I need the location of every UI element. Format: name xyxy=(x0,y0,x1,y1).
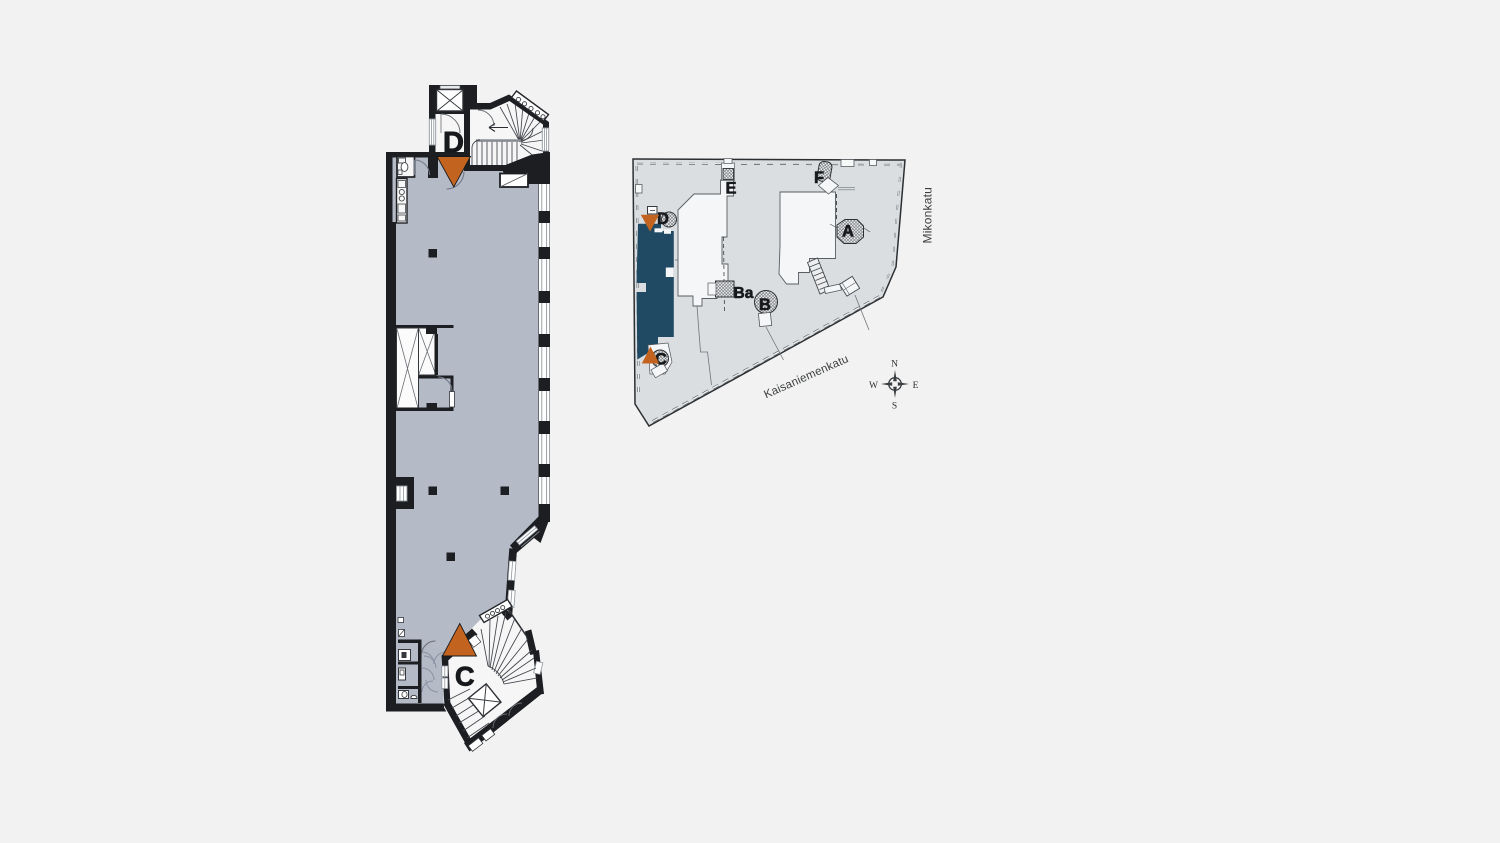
svg-text:E: E xyxy=(913,381,919,391)
svg-text:F: F xyxy=(814,169,824,187)
svg-text:S: S xyxy=(892,402,897,412)
svg-text:W: W xyxy=(869,381,878,391)
svg-text:B: B xyxy=(759,296,771,314)
svg-text:D: D xyxy=(657,210,669,228)
svg-text:N: N xyxy=(891,360,898,370)
svg-text:E: E xyxy=(726,180,737,198)
svg-text:D: D xyxy=(443,127,464,159)
svg-text:Mikonkatu: Mikonkatu xyxy=(921,187,935,244)
svg-text:C: C xyxy=(455,662,475,692)
svg-text:A: A xyxy=(842,223,854,241)
svg-text:Ba: Ba xyxy=(734,285,754,302)
